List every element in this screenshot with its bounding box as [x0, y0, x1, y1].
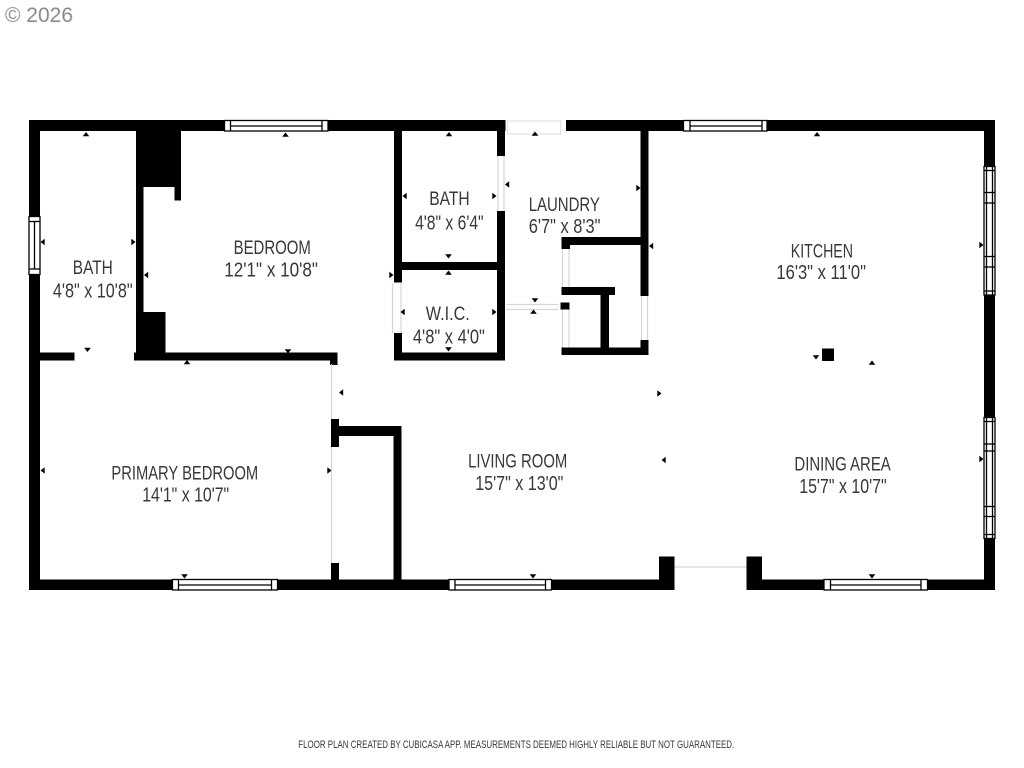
svg-text:15'7" x 10'7": 15'7" x 10'7" — [799, 476, 887, 498]
svg-text:15'7" x 13'0": 15'7" x 13'0" — [475, 473, 563, 495]
svg-text:6'7" x 8'3": 6'7" x 8'3" — [529, 216, 601, 238]
svg-text:KITCHEN: KITCHEN — [791, 242, 853, 263]
svg-text:4'8" x 4'0": 4'8" x 4'0" — [413, 326, 485, 348]
svg-text:4'8" x 10'8": 4'8" x 10'8" — [53, 281, 133, 303]
svg-text:BEDROOM: BEDROOM — [234, 238, 311, 259]
svg-text:12'1" x 10'8": 12'1" x 10'8" — [224, 260, 318, 282]
svg-text:16'3" x 11'0": 16'3" x 11'0" — [776, 262, 866, 284]
svg-text:LAUNDRY: LAUNDRY — [529, 195, 600, 216]
svg-text:BATH: BATH — [73, 258, 113, 279]
svg-text:LIVING ROOM: LIVING ROOM — [468, 451, 567, 472]
svg-text:14'1" x 10'7": 14'1" x 10'7" — [142, 485, 229, 507]
svg-text:4'8" x 6'4": 4'8" x 6'4" — [415, 212, 484, 234]
svg-text:© 2026: © 2026 — [5, 4, 73, 27]
svg-text:DINING AREA: DINING AREA — [794, 454, 891, 475]
svg-text:W.I.C.: W.I.C. — [426, 304, 470, 325]
svg-text:FLOOR PLAN CREATED BY CUBICASA: FLOOR PLAN CREATED BY CUBICASA APP. MEAS… — [298, 739, 734, 751]
svg-text:BATH: BATH — [429, 189, 469, 210]
svg-text:PRIMARY BEDROOM: PRIMARY BEDROOM — [111, 464, 258, 485]
